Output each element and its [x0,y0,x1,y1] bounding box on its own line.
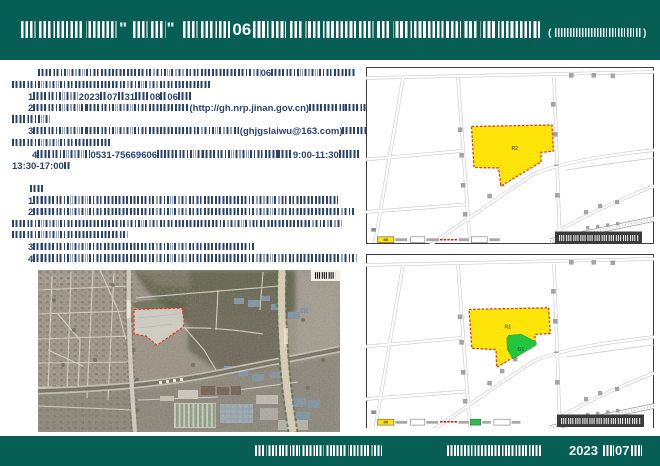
svg-text:R2: R2 [512,146,519,152]
svg-text:R2: R2 [505,325,512,331]
svg-text:G1: G1 [518,347,525,353]
